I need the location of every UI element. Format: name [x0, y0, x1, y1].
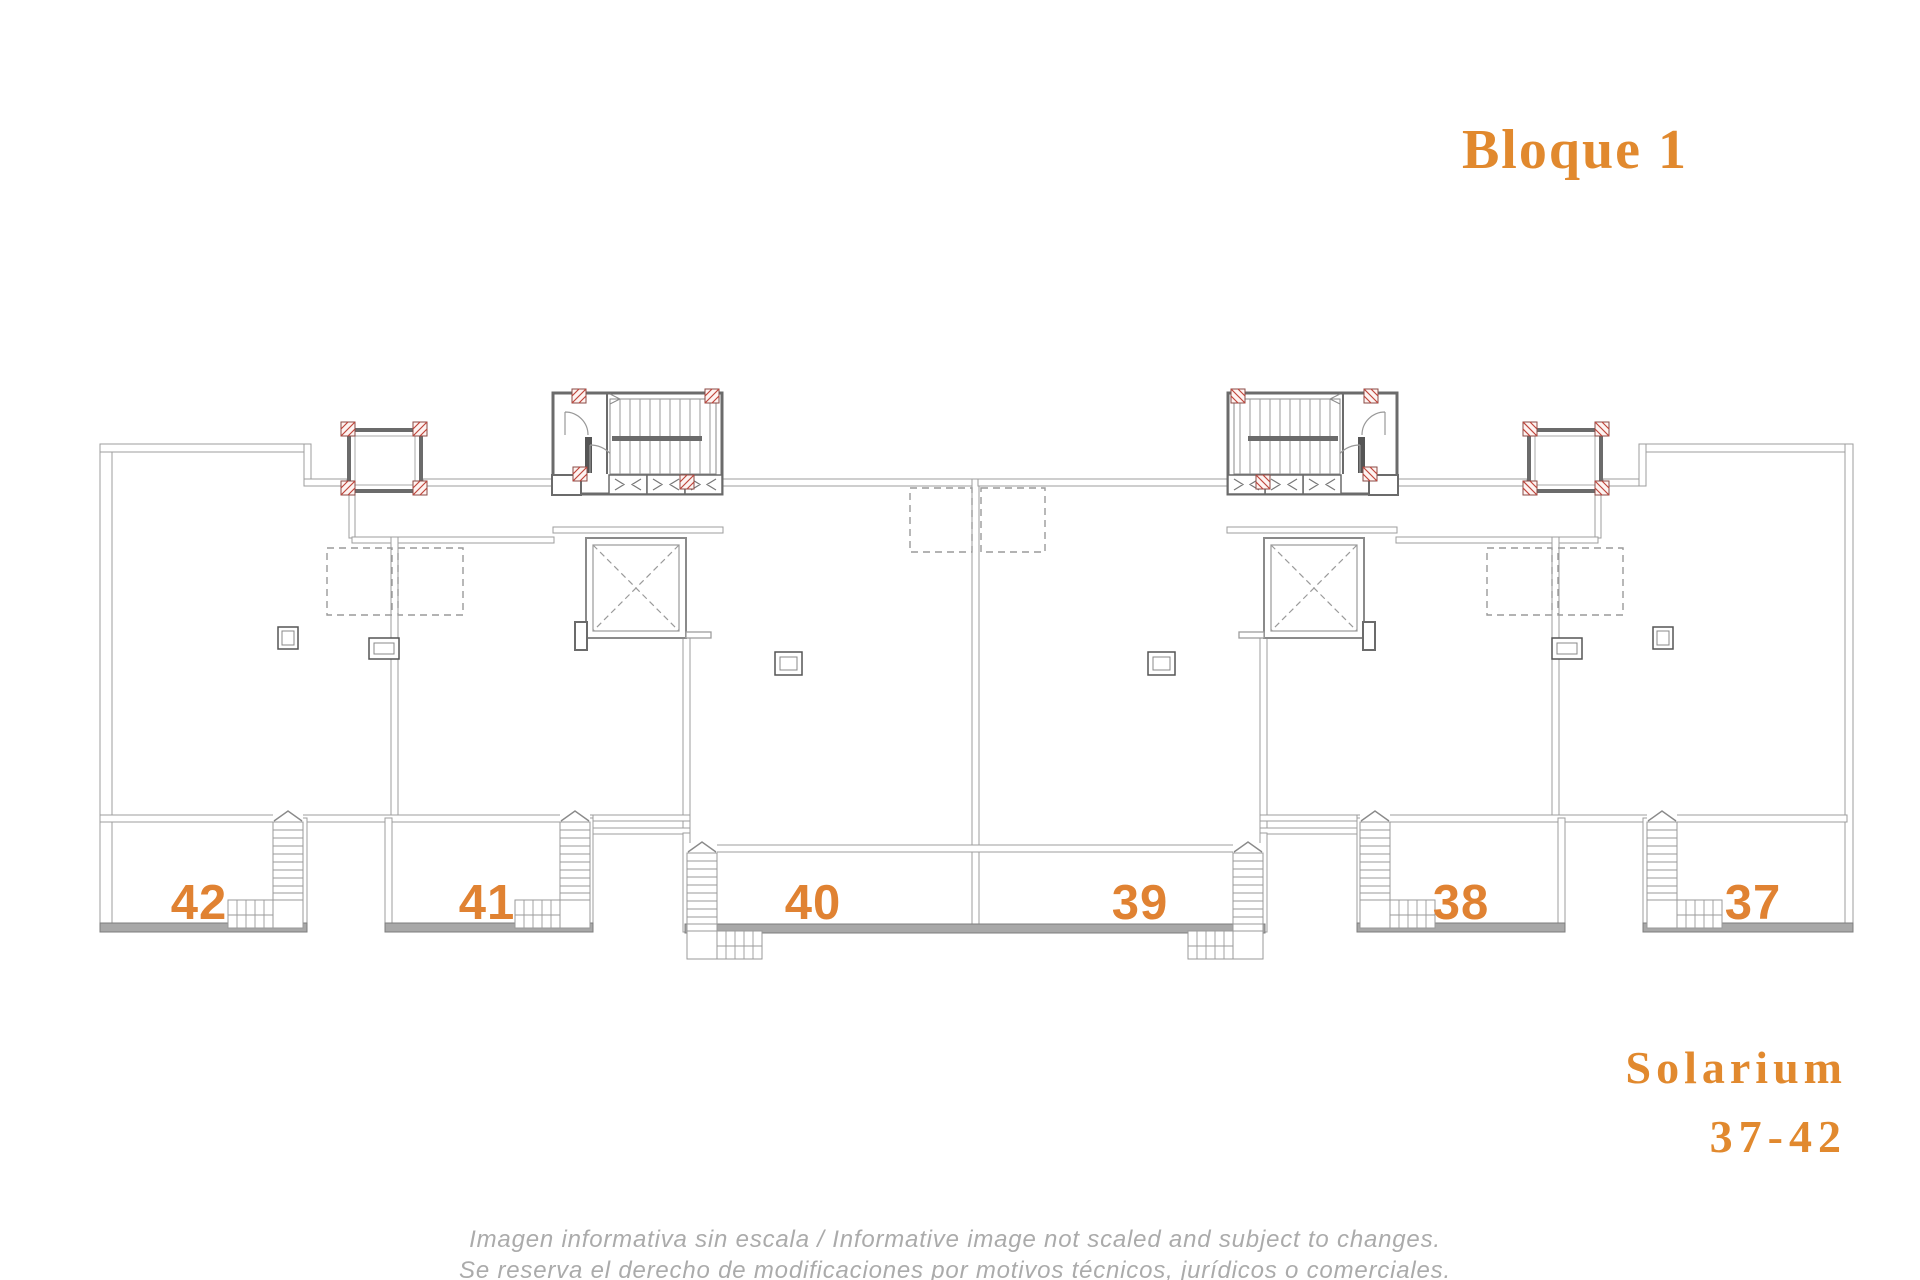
unit-number-40: 40	[785, 876, 842, 930]
perimeter-and-partition-walls	[100, 444, 1853, 932]
top-wall-right-block	[1646, 444, 1853, 452]
unit-number-42: 42	[171, 876, 228, 930]
divider-41-40	[683, 635, 690, 833]
page-title: Bloque 1	[1462, 119, 1688, 181]
floorplan-page: Bloque 1 42 41 40 39 38 37 Solarium 37-4…	[0, 0, 1920, 1280]
disclaimer-line1: Imagen informativa sin escala / Informat…	[469, 1226, 1441, 1253]
floor-plan-svg: Bloque 1 42 41 40 39 38 37 Solarium 37-4…	[0, 0, 1920, 1280]
unit-number-38: 38	[1433, 876, 1490, 930]
outer-wall-right	[1845, 444, 1853, 924]
unit-number-37: 37	[1725, 876, 1782, 930]
stair-core-right	[1228, 389, 1398, 495]
chimney-right	[1523, 422, 1609, 495]
bottom-facade-walls	[100, 923, 1853, 933]
chimney-left	[341, 422, 427, 495]
unit-number-39: 39	[1112, 876, 1169, 930]
stair-core-left	[552, 389, 722, 495]
solarium-label-line1: Solarium	[1626, 1042, 1847, 1093]
elevator-shaft-right	[1239, 538, 1375, 650]
divider-39-38	[1260, 635, 1267, 833]
solarium-label-line2: 37-42	[1710, 1111, 1847, 1162]
unit-number-41: 41	[459, 876, 516, 930]
disclaimer-line2: Se reserva el derecho de modificaciones …	[459, 1257, 1451, 1280]
elevator-shaft-left	[575, 538, 711, 650]
top-wall-left-block	[100, 444, 304, 452]
step-wall-right	[1639, 444, 1646, 486]
outer-wall-left	[100, 444, 112, 924]
central-divider-wall	[972, 479, 979, 932]
